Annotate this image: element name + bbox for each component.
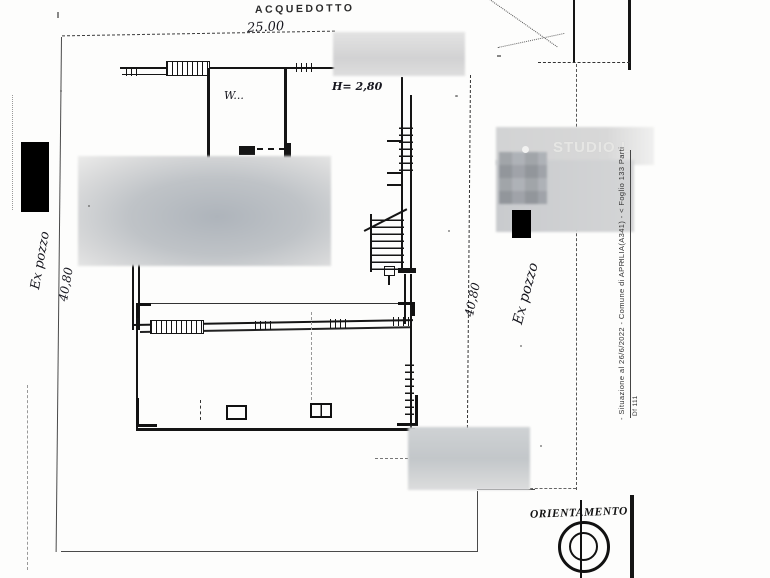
redaction-box-right bbox=[512, 210, 531, 238]
room-dash-mark bbox=[200, 400, 201, 420]
acquedotto-label: ACQUEDOTTO bbox=[255, 2, 355, 16]
compass-inner-circle-icon bbox=[569, 532, 598, 561]
top-boundary-dashed-line bbox=[62, 31, 335, 37]
wall-wc-left bbox=[207, 68, 210, 160]
height-note-label: H= 2,80 bbox=[332, 80, 382, 93]
door-dashed-leaf bbox=[257, 148, 285, 150]
mid-wall-ticks-1 bbox=[255, 321, 271, 330]
sheet-edge-line-top bbox=[628, 0, 631, 70]
blur-region-top bbox=[333, 32, 465, 76]
margin-note-underline bbox=[630, 150, 631, 418]
dash-segment-bottom bbox=[375, 458, 408, 459]
window-hatch-top bbox=[166, 61, 210, 76]
pilaster-top-right bbox=[398, 302, 415, 316]
margin-tick-column bbox=[12, 95, 13, 210]
room-bottom-wall bbox=[136, 428, 415, 431]
scan-speckle bbox=[60, 90, 62, 92]
top-dimension-label: 25.00 bbox=[247, 19, 285, 36]
scan-speckle bbox=[620, 260, 622, 262]
mid-wall-ticks-2 bbox=[330, 319, 346, 328]
blur-region-right-dark bbox=[499, 152, 547, 204]
orientamento-label: ORIENTAMENTO bbox=[530, 505, 628, 520]
watermark-dot-icon bbox=[522, 146, 529, 153]
boundary-bottom-line bbox=[61, 551, 478, 552]
room-top-line bbox=[136, 303, 412, 304]
margin-note-text: - Situazione al 26/6/2022 - Comune di AP… bbox=[617, 150, 626, 420]
wall-stub-1 bbox=[387, 140, 401, 142]
pilaster-top-left bbox=[136, 303, 151, 318]
stairs-base-square bbox=[384, 266, 395, 276]
scan-speckle bbox=[455, 95, 458, 97]
well-annotation-left: Ex pozzo bbox=[28, 230, 53, 290]
dimension-line-mid bbox=[311, 312, 312, 400]
sheet-dashed-horizontal bbox=[538, 62, 630, 63]
scan-speckle bbox=[57, 12, 59, 18]
scan-speckle bbox=[448, 230, 450, 232]
map-dotted-diagonal-1 bbox=[487, 0, 557, 47]
wall-right-inner bbox=[410, 95, 412, 273]
stairs-base-tick bbox=[388, 276, 390, 285]
margin-note-tag: Df 111 bbox=[632, 386, 639, 416]
redaction-box-left bbox=[21, 142, 49, 212]
pilaster-bottom-left bbox=[136, 398, 157, 427]
sheet-inner-line-top bbox=[573, 0, 575, 62]
boundary-right-connect-line bbox=[530, 488, 576, 489]
window-hatch-right bbox=[399, 123, 413, 171]
sheet-edge-line-bottom bbox=[630, 495, 634, 578]
boundary-step-line bbox=[477, 491, 478, 552]
right-dimension-label: 40,80 bbox=[462, 281, 483, 318]
window-hatch-mid bbox=[150, 320, 204, 334]
scan-speckle bbox=[540, 445, 542, 447]
wall-stub-3 bbox=[387, 184, 403, 186]
wc-room-label: W... bbox=[224, 89, 244, 102]
wall-stub-2 bbox=[387, 172, 403, 174]
pilaster-bottom-right bbox=[397, 395, 418, 426]
scan-speckle bbox=[497, 55, 501, 57]
blur-region-bottom bbox=[408, 427, 530, 490]
mid-wall-ticks-3 bbox=[393, 317, 409, 326]
wall-left-inner bbox=[138, 263, 140, 330]
dimension-line-left-lower bbox=[27, 385, 28, 570]
dimension-line-right bbox=[467, 75, 471, 428]
blur-region-left bbox=[78, 156, 331, 266]
compass-needle-icon bbox=[580, 500, 582, 578]
wall-tick-cluster-1 bbox=[126, 68, 140, 76]
wall-left-outer bbox=[132, 263, 134, 330]
pillar-1 bbox=[226, 405, 247, 420]
floor-plan-scan: ACQUEDOTTO 25.00 W... H= 2,80 bbox=[0, 0, 770, 578]
pillar-2 bbox=[310, 403, 332, 418]
wall-tick-cluster-2 bbox=[296, 63, 316, 72]
scan-speckle bbox=[88, 205, 90, 207]
scan-speckle bbox=[520, 345, 522, 347]
door-jamb-left bbox=[239, 146, 255, 155]
well-annotation-right: Ex pozzo bbox=[510, 261, 542, 326]
